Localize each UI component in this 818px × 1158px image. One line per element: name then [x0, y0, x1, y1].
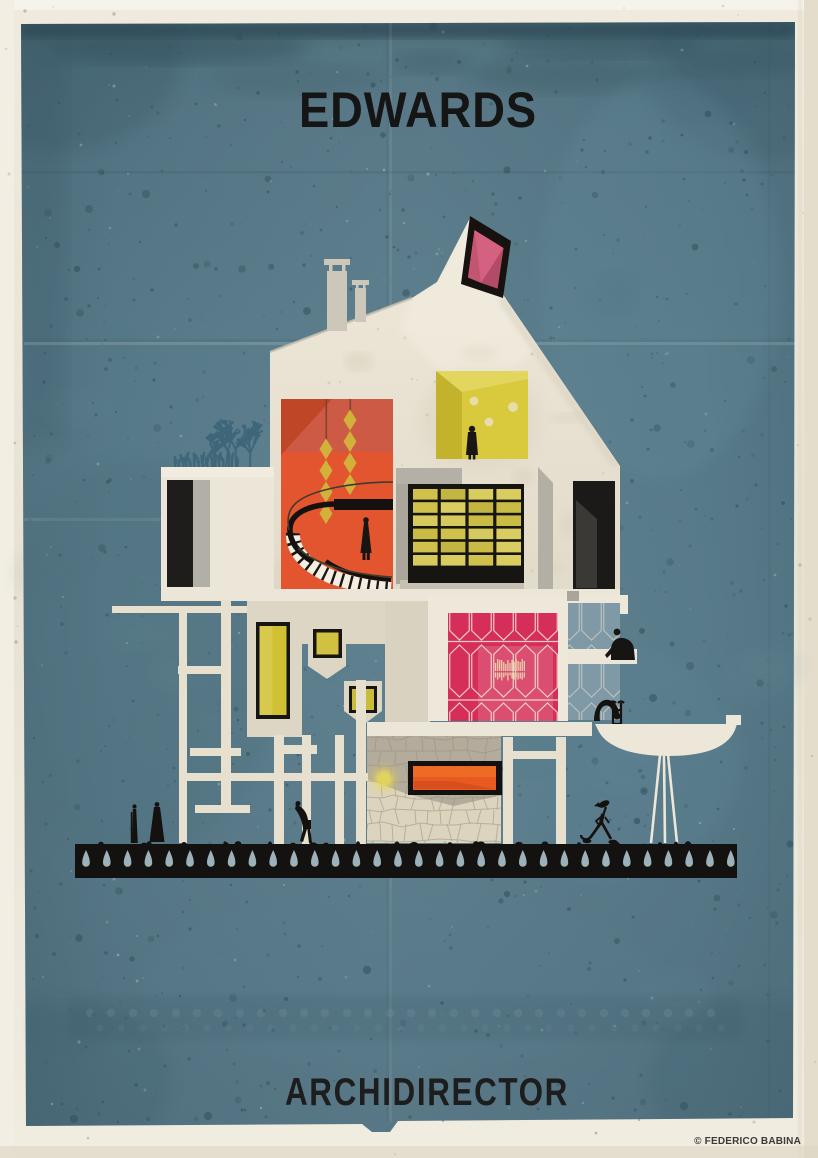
svg-text:EDWARDS: EDWARDS [299, 82, 537, 138]
svg-text:© FEDERICO BABINA: © FEDERICO BABINA [694, 1136, 801, 1147]
svg-text:ARCHIDIRECTOR: ARCHIDIRECTOR [285, 1071, 569, 1114]
